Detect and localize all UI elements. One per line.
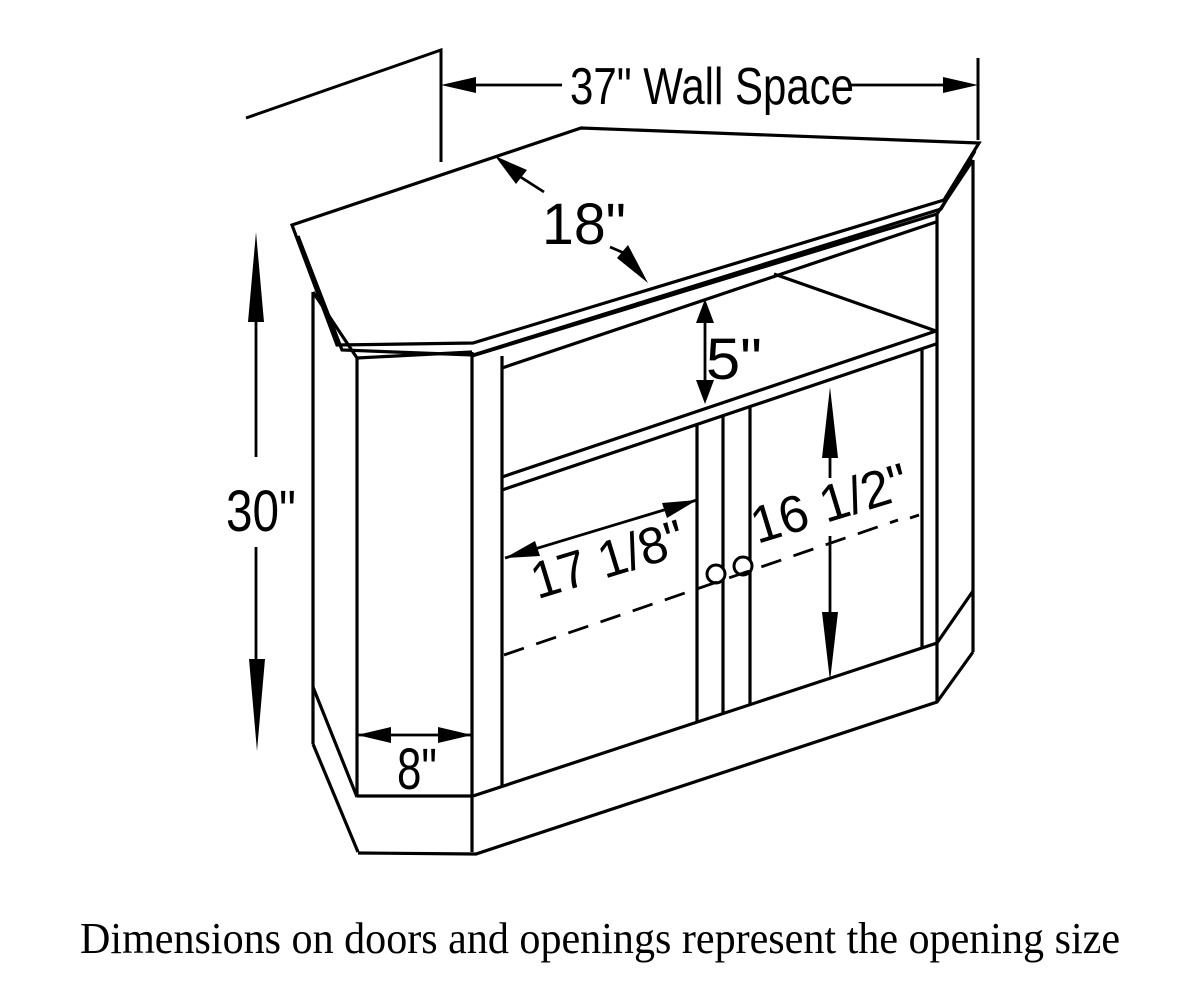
top-surface-outline <box>292 128 979 345</box>
dim-top-depth-upper-spike <box>495 156 527 184</box>
left-side-base-top-edge <box>313 687 357 797</box>
dim-side-panel-width-label: 8" <box>397 737 437 802</box>
drawing-page: 37" Wall Space 18" 5" 30" 17 1/8" 16 1/2 <box>0 0 1200 1000</box>
hidden-shelf-dash-end <box>910 515 919 518</box>
dim-door-opening-height-top-spike <box>822 387 838 458</box>
dim-door-opening-height-bottom-spike <box>822 612 838 681</box>
dim-wall-space-label: 37" Wall Space <box>570 58 854 116</box>
dim-top-depth: 18" <box>495 156 648 283</box>
dim-side-panel-width-left-arrow <box>357 727 391 743</box>
dim-overall-height-bottom-spike <box>249 659 265 751</box>
caption-text: Dimensions on doors and openings represe… <box>80 914 1120 963</box>
shelf-back-edge <box>774 274 936 331</box>
right-chamfer-top-edge <box>937 160 973 214</box>
dim-door-opening-width: 17 1/8" <box>505 500 697 611</box>
dim-opening-height: 5" <box>696 299 762 404</box>
dim-overall-height-top-spike <box>248 232 264 322</box>
dim-side-panel-width-right-arrow <box>438 727 472 743</box>
corner-cabinet-dimension-drawing: 37" Wall Space 18" 5" 30" 17 1/8" 16 1/2 <box>0 0 1200 1000</box>
dim-top-depth-upper-tail <box>519 176 544 192</box>
dim-wall-space-right-arrow <box>943 77 978 93</box>
dim-door-opening-width-label: 17 1/8" <box>524 509 692 611</box>
dim-side-panel-width: 8" <box>357 727 472 802</box>
dim-top-depth-label: 18" <box>542 192 626 257</box>
dim-wall-space: 37" Wall Space <box>441 58 978 116</box>
dim-opening-height-label: 5" <box>706 327 762 392</box>
left-side-base-bottom-edge <box>313 744 358 852</box>
wall-corner-line <box>246 50 441 162</box>
base-bottom-edge <box>358 652 973 854</box>
dim-overall-height-label: 30" <box>226 479 296 544</box>
dim-overall-height: 30" <box>226 232 296 751</box>
dim-wall-space-left-arrow <box>441 77 476 93</box>
left-door-knob <box>707 565 725 583</box>
base-top-edge <box>357 591 973 796</box>
dim-door-opening-height: 16 1/2" <box>744 387 916 681</box>
left-side-top-edge <box>313 292 357 358</box>
